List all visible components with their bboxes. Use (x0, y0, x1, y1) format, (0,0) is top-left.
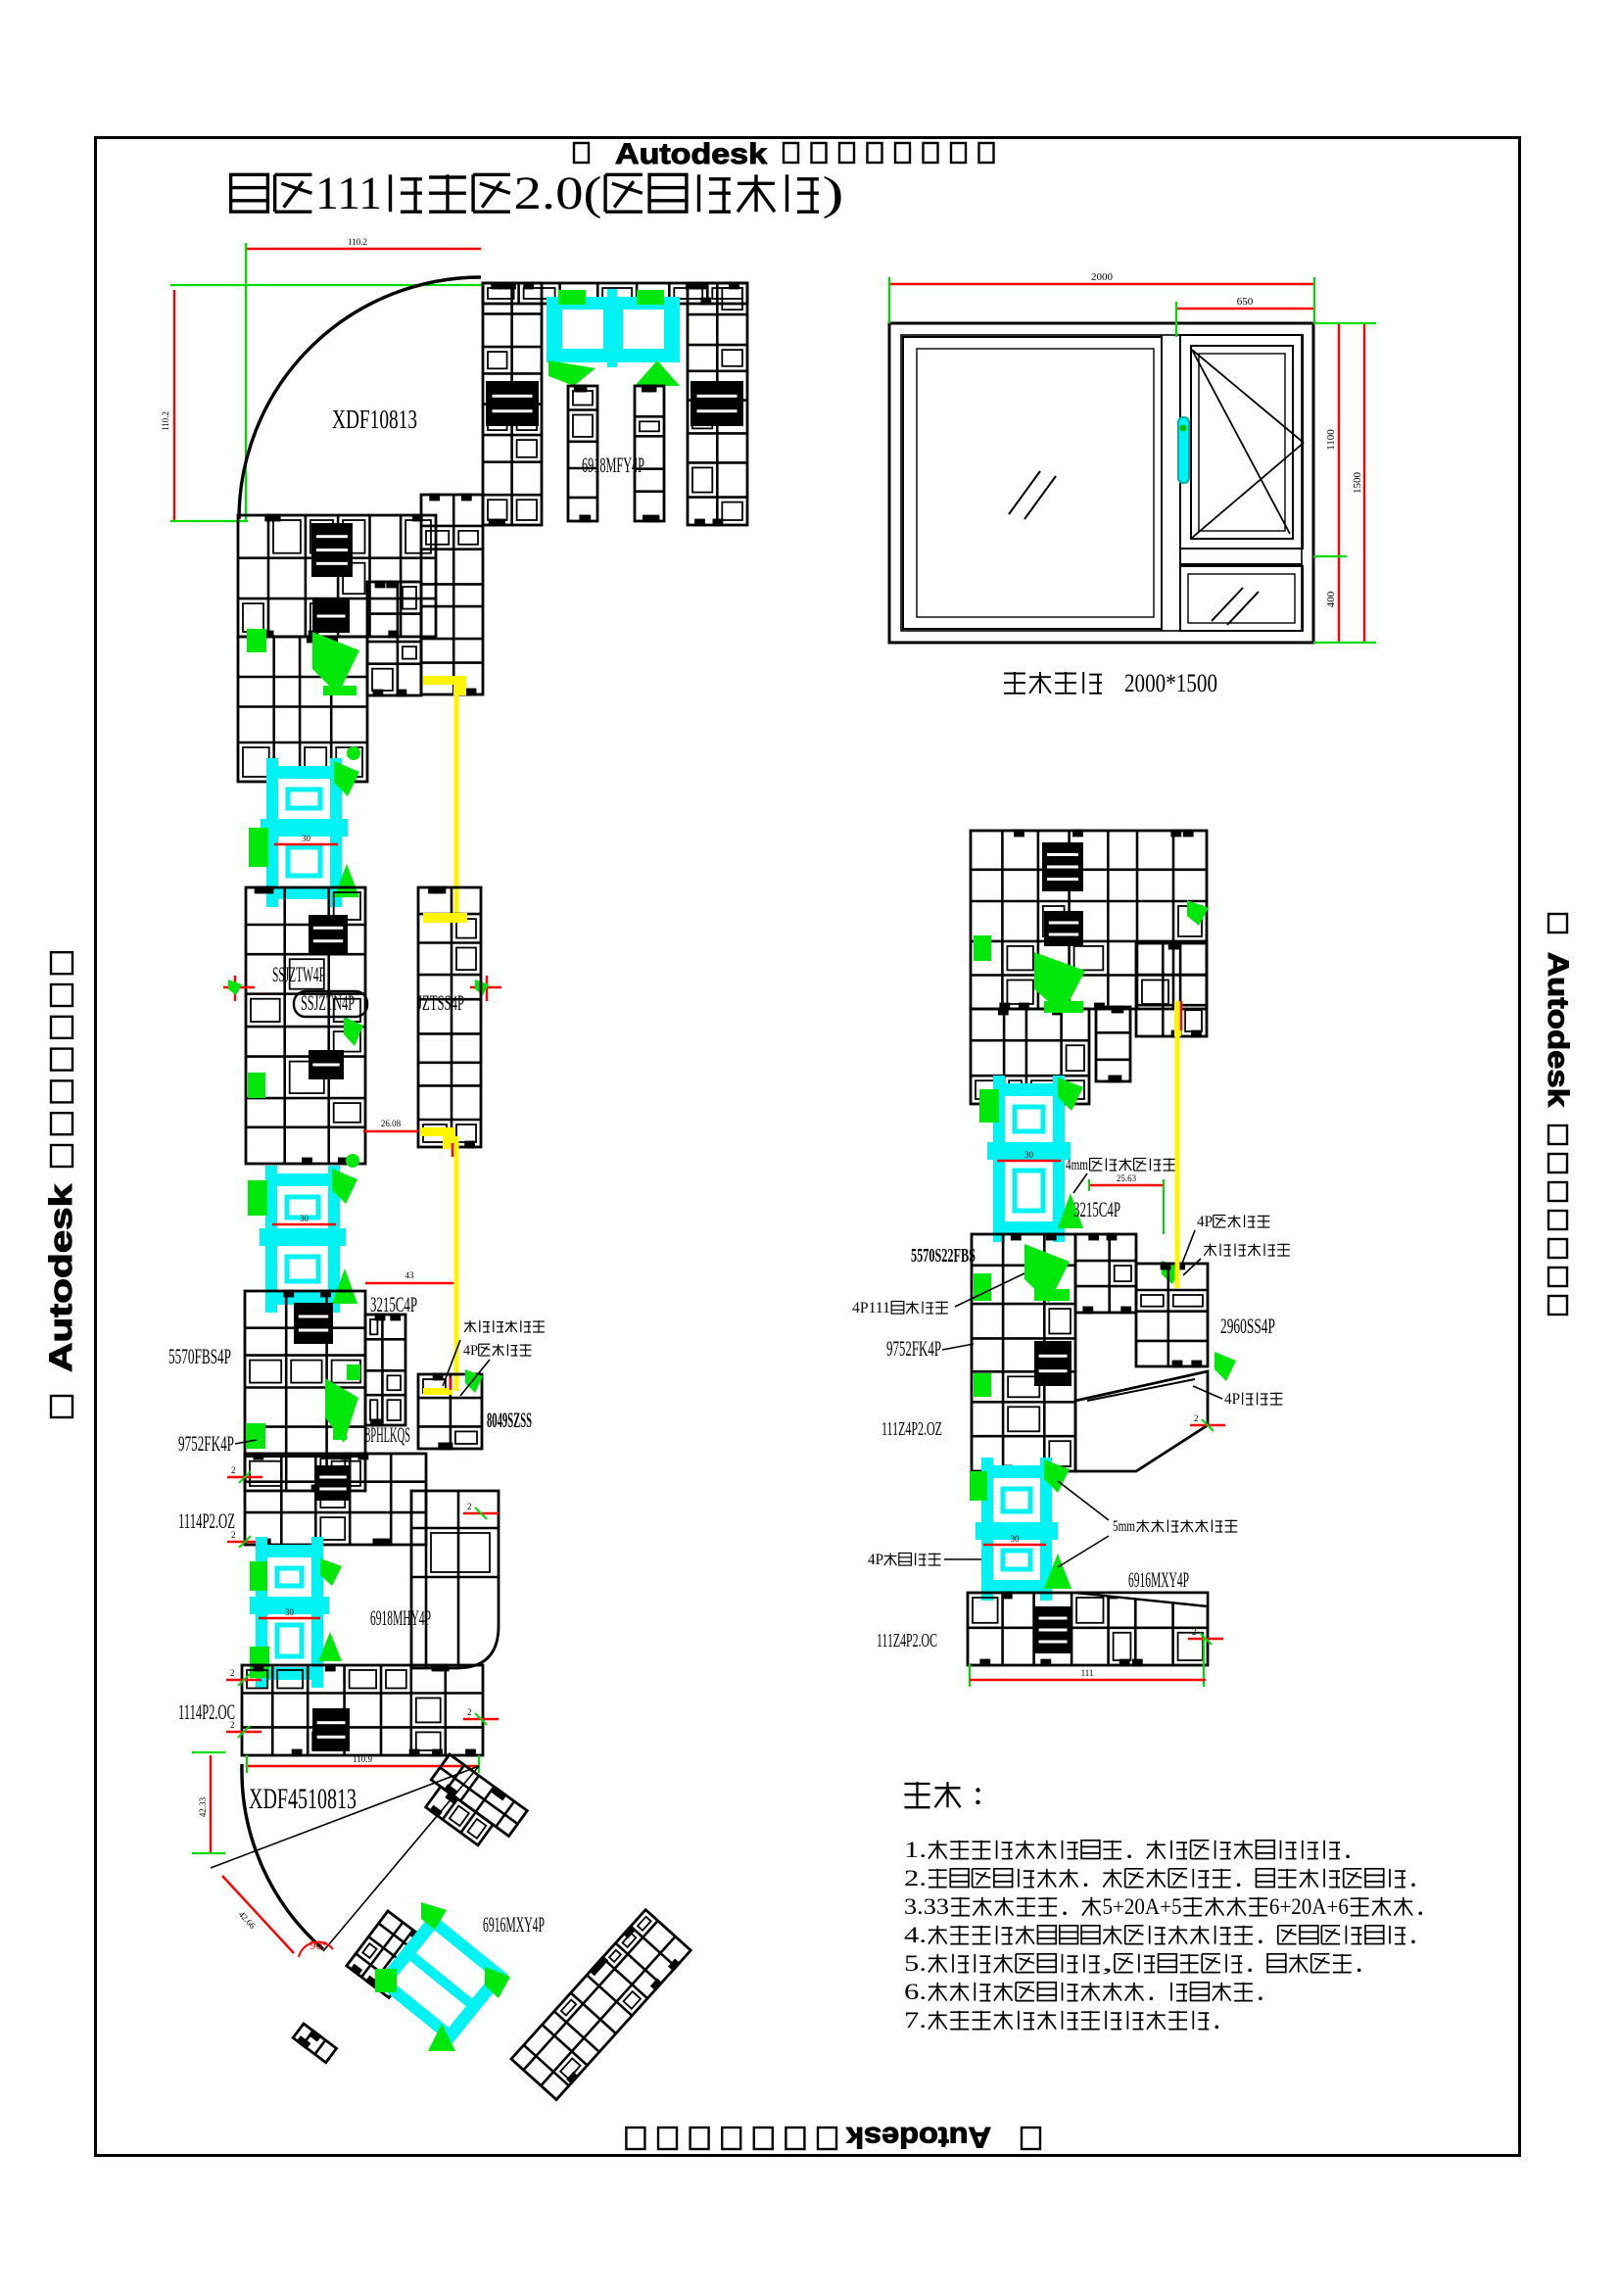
svg-text:400: 400 (1325, 591, 1337, 607)
svg-text:111: 111 (1081, 1668, 1094, 1678)
svg-text:26.08: 26.08 (381, 1119, 402, 1128)
svg-text:2: 2 (230, 1668, 235, 1678)
svg-text:8PHLKQS: 8PHLKQS (365, 1422, 410, 1447)
svg-text:2960SS4P: 2960SS4P (1220, 1314, 1275, 1338)
svg-text:1114P2.OZ: 1114P2.OZ (178, 1508, 235, 1533)
svg-text:9752FK4P: 9752FK4P (178, 1431, 234, 1456)
svg-text:4P: 4P (1224, 1391, 1240, 1408)
svg-text:2000*1500: 2000*1500 (1124, 669, 1217, 697)
svg-text:Autodesk: Autodesk (43, 1184, 78, 1372)
svg-text:30: 30 (302, 834, 311, 843)
svg-text:XDF10813: XDF10813 (332, 405, 417, 434)
svg-text:2: 2 (467, 1707, 472, 1717)
svg-text:2: 2 (1194, 1413, 1199, 1423)
svg-text:SSJZTW4P: SSJZTW4P (272, 962, 325, 986)
svg-text:2: 2 (467, 1502, 472, 1511)
svg-text:2000: 2000 (1091, 271, 1114, 283)
svg-text:110.9: 110.9 (353, 1754, 372, 1764)
svg-text:5570FBS4P: 5570FBS4P (168, 1344, 231, 1368)
svg-text:Autodesk: Autodesk (846, 2121, 991, 2153)
svg-text:1100: 1100 (1325, 429, 1337, 451)
svg-text:Autodesk: Autodesk (615, 138, 767, 170)
svg-text:6918MFY4P: 6918MFY4P (582, 453, 644, 477)
svg-text:5mm: 5mm (1113, 1518, 1135, 1535)
svg-text:6+20A+6: 6+20A+6 (1269, 1894, 1349, 1920)
svg-text:110.2: 110.2 (348, 237, 367, 247)
svg-text:4P111: 4P111 (852, 1300, 890, 1316)
svg-text:): ) (823, 167, 844, 219)
svg-text:25.63: 25.63 (1117, 1173, 1137, 1183)
svg-text:4mm: 4mm (1066, 1157, 1088, 1173)
svg-text:JZTSS4P: JZTSS4P (417, 990, 464, 1015)
svg-text:90°: 90° (310, 1937, 327, 1952)
svg-text:8049SZSS: 8049SZSS (487, 1408, 532, 1432)
svg-text:111Z4P2.OC: 111Z4P2.OC (877, 1630, 937, 1651)
svg-text:30: 30 (1011, 1534, 1021, 1544)
svg-text:5.: 5. (904, 1951, 927, 1977)
svg-text:6.: 6. (904, 1980, 927, 2005)
svg-text:6916MXY4P: 6916MXY4P (1128, 1567, 1189, 1592)
svg-text:4P: 4P (463, 1343, 478, 1359)
svg-text:3215C4P: 3215C4P (1073, 1197, 1120, 1221)
svg-text:6916MXY4P: 6916MXY4P (483, 1912, 545, 1937)
svg-text:6918MHY4P: 6918MHY4P (370, 1605, 431, 1630)
svg-text:111Z4P2.OZ: 111Z4P2.OZ (881, 1418, 942, 1440)
svg-text:1114P2.OC: 1114P2.OC (178, 1699, 235, 1724)
svg-text:30: 30 (1024, 1150, 1034, 1160)
svg-text:111: 111 (315, 167, 382, 219)
svg-text:2: 2 (1192, 1627, 1197, 1637)
svg-text:650: 650 (1237, 296, 1254, 308)
svg-text:4P: 4P (1197, 1214, 1213, 1230)
svg-text:XDF4510813: XDF4510813 (249, 1783, 357, 1815)
svg-text:5570S22FBS: 5570S22FBS (911, 1245, 976, 1267)
svg-text:30: 30 (300, 1214, 310, 1223)
svg-text:2.: 2. (904, 1866, 927, 1891)
svg-text:1500: 1500 (1352, 472, 1363, 495)
svg-text:2.0(: 2.0( (514, 167, 602, 219)
svg-text:3.33: 3.33 (904, 1894, 949, 1920)
svg-text:,: , (1102, 1951, 1114, 1977)
svg-text:110.2: 110.2 (161, 411, 170, 431)
svg-text:42.33: 42.33 (198, 1796, 208, 1817)
svg-text:4P: 4P (868, 1552, 883, 1568)
svg-text:SSJZTN4P: SSJZTN4P (301, 990, 355, 1015)
svg-text:Autodesk: Autodesk (1542, 952, 1574, 1107)
svg-text:3215C4P: 3215C4P (370, 1292, 417, 1316)
svg-text:4.: 4. (904, 1923, 927, 1948)
svg-text:43: 43 (405, 1270, 415, 1280)
svg-text:7.: 7. (904, 2008, 927, 2033)
svg-text:30: 30 (285, 1607, 295, 1617)
svg-text:1.: 1. (904, 1838, 927, 1863)
svg-text:9752FK4P: 9752FK4P (886, 1336, 941, 1361)
svg-text:5+20A+5: 5+20A+5 (1103, 1894, 1182, 1920)
svg-text:2: 2 (231, 1465, 236, 1475)
